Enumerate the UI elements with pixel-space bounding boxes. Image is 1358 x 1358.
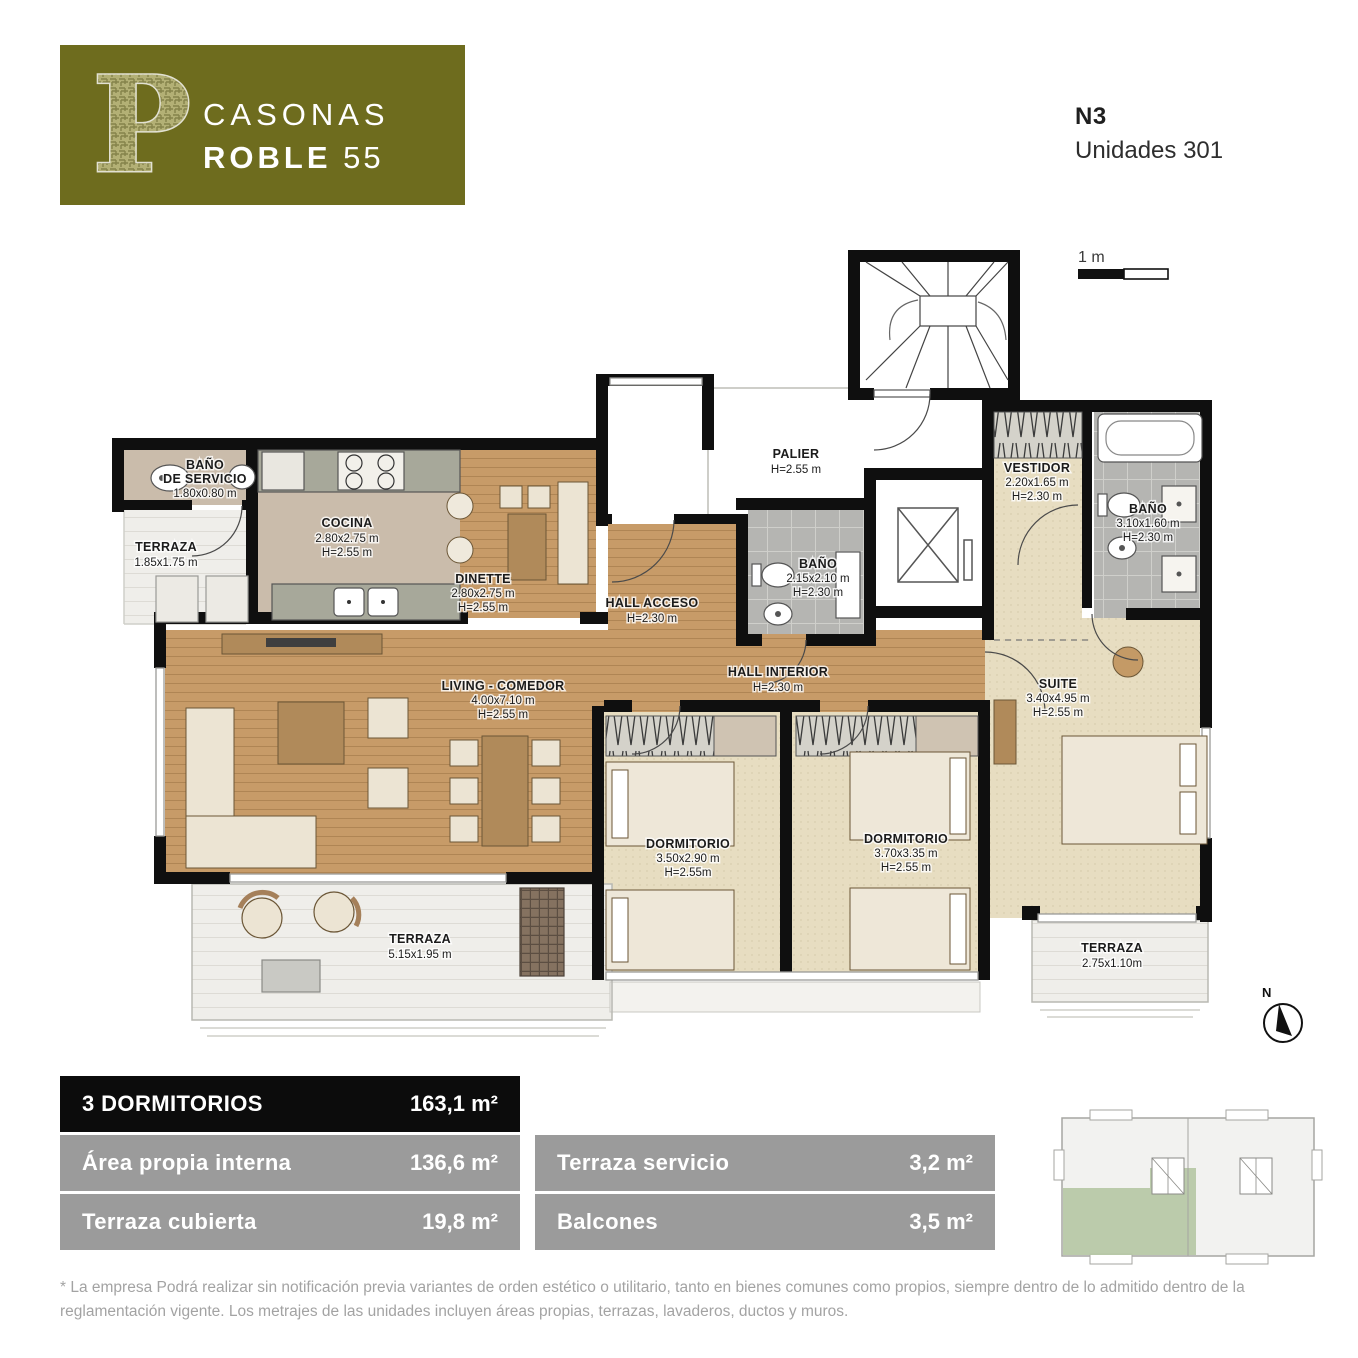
room-label: VESTIDOR (1004, 461, 1070, 475)
room-dim: 1.80x0.80 m (173, 488, 236, 500)
scale-bar: 1 m (1078, 249, 1168, 279)
room-label: BAÑO (1129, 501, 1167, 516)
room-dim: H=2.55m (665, 867, 712, 879)
room-label: PALIER (773, 447, 820, 461)
summary-header-row: 3 DORMITORIOS 163,1 m² (60, 1076, 520, 1132)
room-label: DORMITORIO (646, 837, 730, 851)
room-label: BAÑO (799, 556, 837, 571)
room-dim: 3.50x2.90 m (656, 853, 719, 865)
room-label: TERRAZA (1081, 941, 1143, 955)
room-label: BAÑO (186, 457, 224, 472)
room-dim: H=2.55 m (322, 547, 372, 559)
north-arrow: N (1262, 985, 1302, 1042)
room-label: DE SERVICIO (163, 472, 247, 486)
scale-label: 1 m (1078, 249, 1105, 266)
summary-row-value: 3,5 m² (909, 1209, 973, 1235)
room-label: HALL INTERIOR (728, 665, 828, 679)
summary-header-label: 3 DORMITORIOS (82, 1091, 263, 1117)
room-dim: H=2.30 m (1123, 532, 1173, 544)
room-dim: H=2.30 m (1012, 491, 1062, 503)
room-dim: 3.10x1.60 m (1116, 518, 1179, 530)
room-dim: 1.85x1.75 m (134, 557, 197, 569)
summary-header-value: 163,1 m² (410, 1091, 498, 1117)
room-dim: 2.15x2.10 m (786, 573, 849, 585)
keyplan (1054, 1110, 1322, 1264)
summary-row-label: Terraza cubierta (82, 1209, 257, 1235)
summary-row-terraza-cubierta: Terraza cubierta 19,8 m² (60, 1194, 520, 1250)
room-dim: 2.20x1.65 m (1005, 477, 1068, 489)
room-dim: 4.00x7.10 m (471, 695, 534, 707)
summary-row-terraza-servicio: Terraza servicio 3,2 m² (535, 1135, 995, 1191)
room-label: DORMITORIO (864, 832, 948, 846)
room-label: SUITE (1039, 677, 1077, 691)
room-dim: H=2.55 m (771, 464, 821, 476)
staircase (866, 262, 1008, 397)
room-dim: 3.70x3.35 m (874, 848, 937, 860)
legal-disclaimer: * La empresa Podrá realizar sin notifica… (60, 1276, 1310, 1324)
room-label: TERRAZA (135, 540, 197, 554)
room-dim: H=2.55 m (1033, 707, 1083, 719)
room-dim: H=2.30 m (793, 587, 843, 599)
room-dim: 5.15x1.95 m (388, 949, 451, 961)
room-dim: 2.80x2.75 m (451, 588, 514, 600)
room-dim: H=2.30 m (627, 613, 677, 625)
summary-row-area-propia: Área propia interna 136,6 m² (60, 1135, 520, 1191)
summary-row-value: 19,8 m² (422, 1209, 498, 1235)
summary-row-value: 136,6 m² (410, 1150, 498, 1176)
summary-row-balcones: Balcones 3,5 m² (535, 1194, 995, 1250)
room-dim: 2.80x2.75 m (315, 533, 378, 545)
summary-row-value: 3,2 m² (909, 1150, 973, 1176)
room-dim: 2.75x1.10m (1082, 958, 1142, 970)
summary-row-label: Área propia interna (82, 1150, 291, 1176)
room-dim: H=2.55 m (458, 602, 508, 614)
room-label: HALL ACCESO (606, 596, 699, 610)
summary-row-label: Terraza servicio (557, 1150, 729, 1176)
room-label: TERRAZA (389, 932, 451, 946)
summary-row-label: Balcones (557, 1209, 658, 1235)
room-label: LIVING - COMEDOR (442, 679, 565, 693)
room-label: COCINA (321, 516, 372, 530)
room-label: DINETTE (455, 572, 511, 586)
room-dim: H=2.30 m (753, 682, 803, 694)
room-dim: 3.40x4.95 m (1026, 693, 1089, 705)
room-dim: H=2.55 m (478, 709, 528, 721)
room-dim: H=2.55 m (881, 862, 931, 874)
north-label: N (1262, 985, 1271, 1000)
